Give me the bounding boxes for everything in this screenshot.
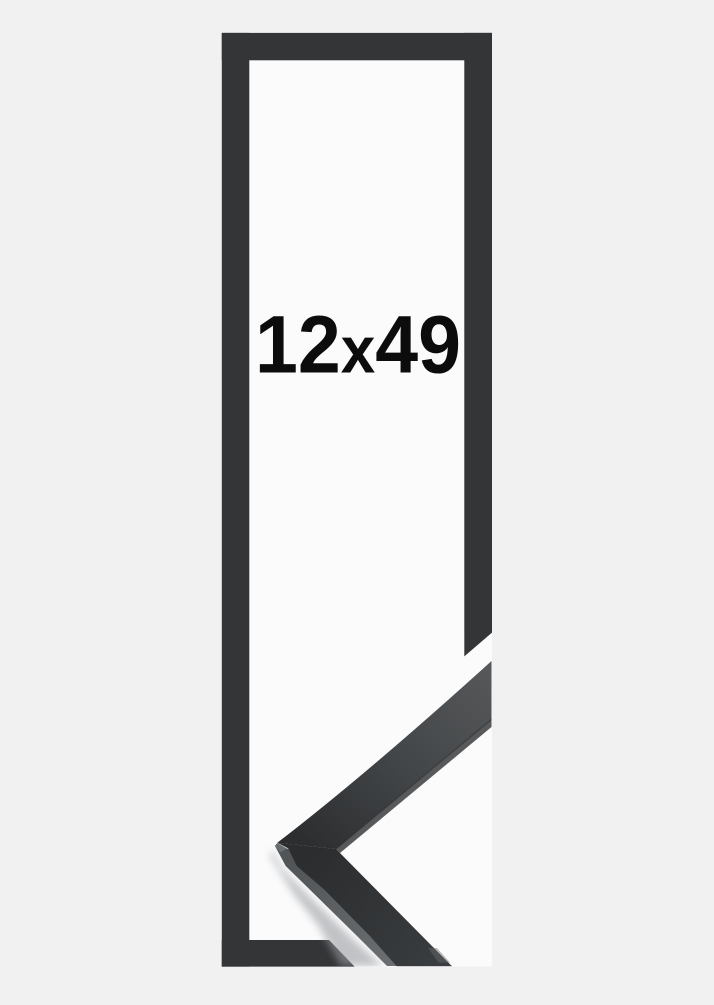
svg-text:12x49: 12x49 bbox=[255, 298, 461, 390]
